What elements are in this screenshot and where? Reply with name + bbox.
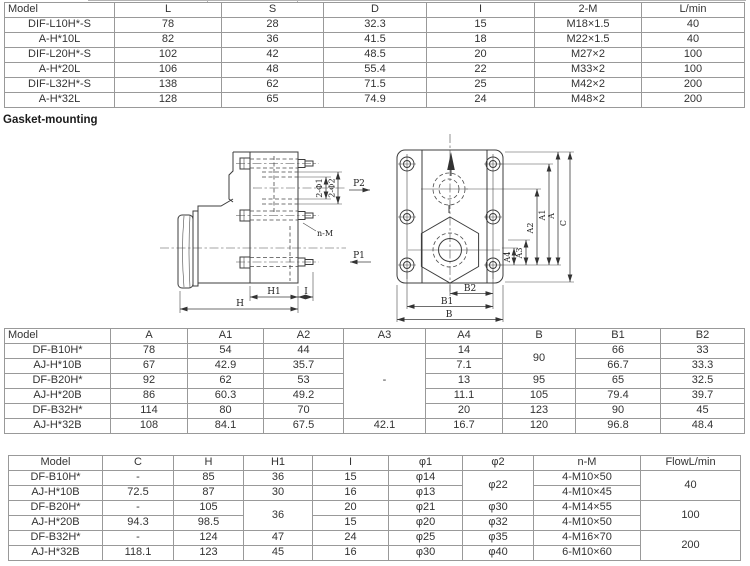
- table-cell: 15: [313, 516, 389, 531]
- table-cell: 16: [313, 546, 389, 561]
- column-header: A: [111, 329, 188, 344]
- column-header: H1: [244, 456, 313, 471]
- table-cell: 13: [426, 374, 503, 389]
- table-cell: 123: [503, 404, 576, 419]
- column-header: Model: [5, 329, 111, 344]
- flow-direction-arrow: [447, 152, 455, 170]
- table-cell: φ30: [463, 501, 534, 516]
- table-cell: 4-M10×50: [534, 516, 641, 531]
- table-cell: AJ-H*10B: [9, 486, 103, 501]
- table-cell: 36: [244, 501, 313, 531]
- table-cell: 39.7: [661, 389, 745, 404]
- table-cell: 36: [244, 471, 313, 486]
- dim-label-c: C: [559, 220, 568, 226]
- table-cell: 16.7: [426, 419, 503, 434]
- b-series-dimensions-table-b: ModelCHH1Iφ1φ2n-MFlowL/minDF-B10H*-85361…: [8, 455, 741, 561]
- column-header: φ1: [389, 456, 463, 471]
- table-cell: 60.3: [188, 389, 264, 404]
- table-cell: 98.5: [174, 516, 244, 531]
- table-cell: 65: [576, 374, 661, 389]
- table-cell: φ21: [389, 501, 463, 516]
- side-bolt-heads: [240, 158, 250, 268]
- table-cell: AJ-H*20B: [9, 516, 103, 531]
- table-cell: DF-B10H*: [5, 344, 111, 359]
- table-cell: 15: [313, 471, 389, 486]
- table-cell: 120: [503, 419, 576, 434]
- table-cell: 20: [313, 501, 389, 516]
- table-cell: 124: [174, 531, 244, 546]
- front-view: A4 A3 A2 A1 A C B2 B1 B: [397, 134, 574, 322]
- dim-label-a: A: [547, 213, 556, 220]
- table-cell: φ14: [389, 471, 463, 486]
- port-label-p1: P1: [353, 251, 365, 261]
- column-header: A4: [426, 329, 503, 344]
- table-cell: φ30: [389, 546, 463, 561]
- table-cell: 114: [111, 404, 188, 419]
- table-cell: 40: [641, 471, 741, 501]
- column-header: H: [174, 456, 244, 471]
- table-cell: 42.9: [188, 359, 264, 374]
- table-cell: AJ-H*20B: [5, 389, 111, 404]
- table-cell: 42.1: [344, 419, 426, 434]
- column-header: B2: [661, 329, 745, 344]
- dim-label-h1: H1: [267, 287, 281, 297]
- table-cell: 45: [661, 404, 745, 419]
- datasheet-page: { "page": { "heading_gasket": "Gasket-mo…: [0, 0, 750, 566]
- dim-label-i: I: [304, 287, 308, 297]
- table-cell: φ22: [463, 471, 534, 501]
- column-header: A2: [264, 329, 344, 344]
- table-cell: 66.7: [576, 359, 661, 374]
- table-cell: 62: [188, 374, 264, 389]
- column-header: n-M: [534, 456, 641, 471]
- dim-label-b: B: [446, 310, 453, 320]
- table-cell: 95: [503, 374, 576, 389]
- column-header: B1: [576, 329, 661, 344]
- table-cell: 16: [313, 486, 389, 501]
- table-cell: 96.8: [576, 419, 661, 434]
- table-cell: -: [103, 531, 174, 546]
- table-cell: 90: [503, 344, 576, 374]
- table-cell: DF-B20H*: [5, 374, 111, 389]
- table-cell: 118.1: [103, 546, 174, 561]
- table-cell: 44: [264, 344, 344, 359]
- table-cell: DF-B10H*: [9, 471, 103, 486]
- column-header: C: [103, 456, 174, 471]
- table-cell: DF-B20H*: [9, 501, 103, 516]
- table-cell: 79.4: [576, 389, 661, 404]
- table-row: AJ-H*32B10884.167.542.116.712096.848.4: [5, 419, 745, 434]
- table-row: AJ-H*20B94.398.515φ20φ324-M10×50: [9, 516, 741, 531]
- table-cell: AJ-H*10B: [5, 359, 111, 374]
- dim-label-b1: B1: [441, 297, 453, 307]
- table-cell: 105: [174, 501, 244, 516]
- table-cell: φ40: [463, 546, 534, 561]
- table-cell: 24: [313, 531, 389, 546]
- table-cell: 20: [426, 404, 503, 419]
- table-cell: φ25: [389, 531, 463, 546]
- table-cell: 49.2: [264, 389, 344, 404]
- table-cell: AJ-H*32B: [9, 546, 103, 561]
- table-cell: 33: [661, 344, 745, 359]
- column-header: FlowL/min: [641, 456, 741, 471]
- table-cell: 4-M16×70: [534, 531, 641, 546]
- table-cell: 33.3: [661, 359, 745, 374]
- table-cell: 67.5: [264, 419, 344, 434]
- column-header: Model: [9, 456, 103, 471]
- port-label-p2: P2: [353, 179, 365, 189]
- table-row: DF-B32H*-1244724φ25φ354-M16×70200: [9, 531, 741, 546]
- table-cell: 86: [111, 389, 188, 404]
- table-cell: 4-M14×55: [534, 501, 641, 516]
- table-cell: 4-M10×50: [534, 471, 641, 486]
- table-row: DF-B10H*785444-14906633: [5, 344, 745, 359]
- table-cell: 94.3: [103, 516, 174, 531]
- table-cell: -: [103, 471, 174, 486]
- table-cell: 200: [641, 531, 741, 561]
- table-row: AJ-H*10B72.5873016φ134-M10×45: [9, 486, 741, 501]
- table-cell: 70: [264, 404, 344, 419]
- table-cell: DF-B32H*: [5, 404, 111, 419]
- column-header: I: [313, 456, 389, 471]
- table-cell: 84.1: [188, 419, 264, 434]
- table-cell: 30: [244, 486, 313, 501]
- dim-label-a2: A2: [526, 223, 535, 235]
- table-cell: 6-M10×60: [534, 546, 641, 561]
- table-cell: 32.5: [661, 374, 745, 389]
- table-cell: 123: [174, 546, 244, 561]
- table-cell: 100: [641, 501, 741, 531]
- side-view: 2-Φ1 2-Φ2 n-M P2 P1 H1 I H: [160, 152, 371, 313]
- dim-label-a3: A3: [515, 248, 524, 260]
- table-cell: 35.7: [264, 359, 344, 374]
- table-cell: 54: [188, 344, 264, 359]
- column-header: A3: [344, 329, 426, 344]
- table-cell: 87: [174, 486, 244, 501]
- table-cell: 47: [244, 531, 313, 546]
- table-cell: 80: [188, 404, 264, 419]
- table-cell: φ35: [463, 531, 534, 546]
- column-header: φ2: [463, 456, 534, 471]
- table-cell: 11.1: [426, 389, 503, 404]
- table-cell: 48.4: [661, 419, 745, 434]
- table-cell: 67: [111, 359, 188, 374]
- table-cell: DF-B32H*: [9, 531, 103, 546]
- dim-label-n-m: n-M: [317, 229, 333, 238]
- dim-label-a4: A4: [503, 252, 512, 264]
- dim-label-a1: A1: [538, 210, 547, 222]
- column-header: B: [503, 329, 576, 344]
- table-cell: 72.5: [103, 486, 174, 501]
- table-cell: 78: [111, 344, 188, 359]
- table-row: AJ-H*32B118.11234516φ30φ406-M10×60: [9, 546, 741, 561]
- dim-label-b2: B2: [464, 284, 476, 294]
- table-cell: 108: [111, 419, 188, 434]
- column-header: A1: [188, 329, 264, 344]
- table-cell: 45: [244, 546, 313, 561]
- table-cell: 4-M10×45: [534, 486, 641, 501]
- table-cell: φ13: [389, 486, 463, 501]
- table-cell: -: [103, 501, 174, 516]
- side-studs: [298, 160, 313, 267]
- table-cell: 66: [576, 344, 661, 359]
- table-cell: 85: [174, 471, 244, 486]
- table-cell: 90: [576, 404, 661, 419]
- table-cell: φ20: [389, 516, 463, 531]
- table-cell: 105: [503, 389, 576, 404]
- table-cell: 14: [426, 344, 503, 359]
- b-series-dimensions-table-a: ModelAA1A2A3A4BB1B2DF-B10H*785444-149066…: [4, 328, 745, 434]
- table-cell: AJ-H*32B: [5, 419, 111, 434]
- table-row: DF-B10H*-853615φ14φ224-M10×5040: [9, 471, 741, 486]
- table-cell: φ32: [463, 516, 534, 531]
- dim-label-h: H: [236, 299, 244, 309]
- table-row: DF-B20H*-1053620φ21φ304-M14×55100: [9, 501, 741, 516]
- table-cell: -: [344, 344, 426, 419]
- table-cell: 7.1: [426, 359, 503, 374]
- table-cell: 53: [264, 374, 344, 389]
- table-cell: 92: [111, 374, 188, 389]
